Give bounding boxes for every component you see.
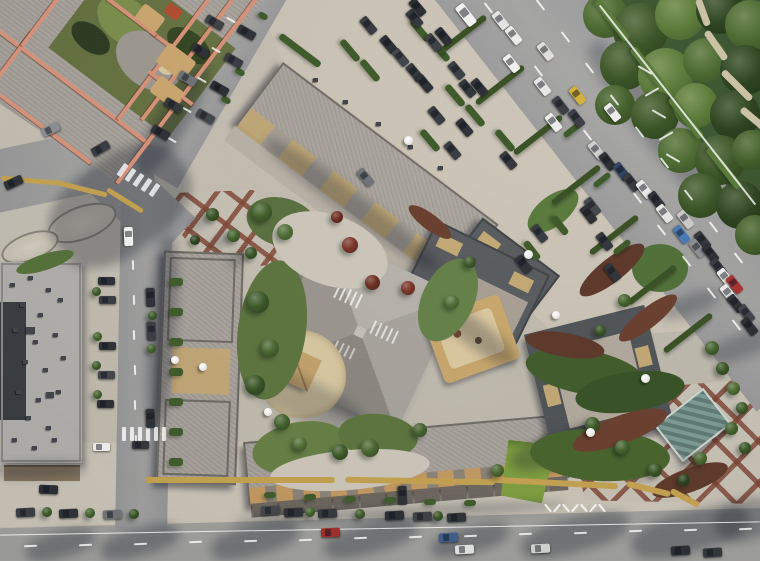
car — [446, 512, 465, 522]
hedge-strip — [169, 368, 183, 376]
tree — [305, 507, 315, 517]
tree — [401, 281, 415, 295]
road-marking — [738, 528, 751, 530]
car — [454, 544, 473, 554]
car — [98, 371, 115, 379]
car — [320, 527, 339, 537]
car — [260, 505, 279, 515]
tree — [739, 442, 751, 454]
car — [670, 545, 690, 555]
car — [99, 342, 116, 350]
rooftop-unit — [438, 166, 443, 170]
tree — [727, 382, 740, 395]
tree — [355, 509, 365, 519]
footpath-segment — [145, 477, 335, 483]
car — [38, 484, 57, 494]
tree — [92, 361, 101, 370]
car — [123, 226, 133, 245]
road-marking — [154, 427, 158, 441]
road-marking — [146, 427, 150, 441]
tree — [93, 390, 102, 399]
road-marking — [162, 427, 166, 441]
road-marking — [133, 295, 135, 305]
rooftop-unit — [56, 390, 61, 394]
west-building — [0, 262, 82, 463]
road-marking — [134, 365, 136, 375]
road-marking — [130, 427, 134, 441]
roof-umbrella — [552, 311, 560, 319]
tree — [595, 325, 606, 336]
hedge-strip — [424, 499, 436, 506]
rooftop-unit — [52, 438, 57, 442]
car — [97, 400, 114, 408]
tree — [129, 509, 139, 519]
aerial-site-render: team — [0, 0, 760, 561]
road-marking — [134, 400, 136, 410]
tree — [361, 439, 379, 457]
rooftop-unit — [33, 340, 38, 344]
rooftop-unit — [61, 356, 66, 360]
rooftop-unit — [10, 283, 15, 287]
car — [317, 508, 336, 518]
tree — [491, 464, 504, 477]
car — [283, 507, 302, 517]
road-marking — [133, 330, 135, 340]
car — [146, 321, 156, 340]
hedge-strip — [169, 338, 183, 346]
tree — [694, 452, 707, 465]
roof-umbrella — [264, 408, 272, 416]
roof-umbrella — [524, 250, 533, 259]
rooftop-unit — [26, 327, 35, 334]
road-marking — [23, 545, 36, 547]
rooftop-unit — [46, 392, 54, 398]
rooftop-unit — [408, 145, 413, 149]
tree — [252, 202, 272, 222]
road-marking — [628, 530, 641, 532]
road-marking — [683, 529, 696, 531]
tree — [716, 362, 729, 375]
rooftop-unit — [23, 360, 28, 364]
rooftop-unit — [343, 100, 348, 104]
tree — [615, 440, 630, 455]
tree — [227, 229, 240, 242]
tree — [42, 507, 52, 517]
rooftop-unit — [36, 398, 41, 402]
tree — [245, 375, 265, 395]
tree — [148, 311, 157, 320]
car — [145, 287, 155, 306]
west-building-parapet — [0, 262, 82, 463]
roof-umbrella — [586, 428, 595, 437]
rooftop-unit — [46, 426, 51, 430]
road-marking — [122, 427, 126, 441]
tree — [247, 291, 269, 313]
tree — [277, 224, 293, 240]
tree — [725, 422, 738, 435]
car — [98, 277, 115, 285]
tree — [648, 463, 662, 477]
road-marking — [298, 539, 311, 541]
hedge-strip — [169, 428, 183, 436]
tree — [274, 414, 290, 430]
rooftop-unit — [13, 328, 18, 332]
car — [384, 510, 403, 520]
tree — [293, 437, 307, 451]
road-marking — [408, 536, 421, 538]
tree — [413, 423, 427, 437]
tree — [261, 339, 279, 357]
tree — [206, 208, 219, 221]
car — [397, 485, 407, 504]
rooftop-unit — [16, 390, 21, 394]
car — [412, 511, 431, 521]
car — [93, 443, 110, 451]
road-marking — [78, 544, 91, 546]
road-marking — [573, 532, 586, 534]
hedge-strip — [384, 497, 396, 504]
tree — [85, 508, 95, 518]
car — [58, 508, 77, 518]
hedge-strip — [169, 458, 183, 466]
hedge-strip — [344, 496, 356, 503]
road-marking — [243, 540, 256, 542]
road-marking — [132, 260, 134, 270]
tree — [705, 341, 719, 355]
car — [438, 532, 457, 542]
rooftop-unit — [58, 298, 63, 302]
tree — [736, 402, 748, 414]
rooftop-unit — [12, 438, 17, 442]
roof-umbrella — [199, 363, 207, 371]
hedge-strip — [464, 500, 476, 507]
tree — [464, 256, 476, 268]
rooftop-unit — [20, 303, 25, 307]
tree — [93, 332, 102, 341]
rooftop-unit — [43, 368, 48, 372]
road-marking — [463, 535, 476, 537]
rooftop-unit — [28, 276, 33, 280]
rooftop-unit — [376, 122, 381, 126]
tree — [332, 444, 348, 460]
hedge-strip — [264, 492, 276, 499]
car — [702, 547, 722, 557]
tree — [365, 275, 380, 290]
tree — [342, 237, 358, 253]
tree — [331, 211, 343, 223]
car — [530, 543, 549, 553]
roof-umbrella — [404, 136, 413, 145]
rooftop-unit — [53, 333, 58, 337]
road-marking — [353, 537, 366, 539]
tree — [245, 247, 257, 259]
tree — [190, 235, 200, 245]
hedge-strip — [304, 494, 316, 501]
car — [15, 507, 34, 517]
rooftop-unit — [313, 78, 318, 82]
tree — [147, 344, 156, 353]
car — [102, 509, 121, 519]
west-slab-inner-line — [169, 259, 234, 341]
road-marking — [138, 427, 142, 441]
rooftop-unit — [32, 446, 37, 450]
rooftop-unit — [38, 313, 43, 317]
roof-umbrella — [641, 374, 650, 383]
road-marking — [188, 541, 201, 543]
car — [132, 441, 149, 449]
rooftop-unit — [46, 288, 51, 292]
car — [99, 296, 116, 304]
tree — [433, 511, 443, 521]
tree — [618, 294, 631, 307]
hedge-strip — [169, 398, 183, 406]
hedge-strip — [169, 308, 183, 316]
tree — [678, 474, 690, 486]
car — [145, 408, 155, 427]
road-marking — [133, 543, 146, 545]
tree — [445, 295, 459, 309]
hedge-strip — [169, 278, 183, 286]
rooftop-unit — [26, 416, 31, 420]
roof-umbrella — [171, 356, 179, 364]
tree — [92, 287, 101, 296]
road-marking — [518, 533, 531, 535]
